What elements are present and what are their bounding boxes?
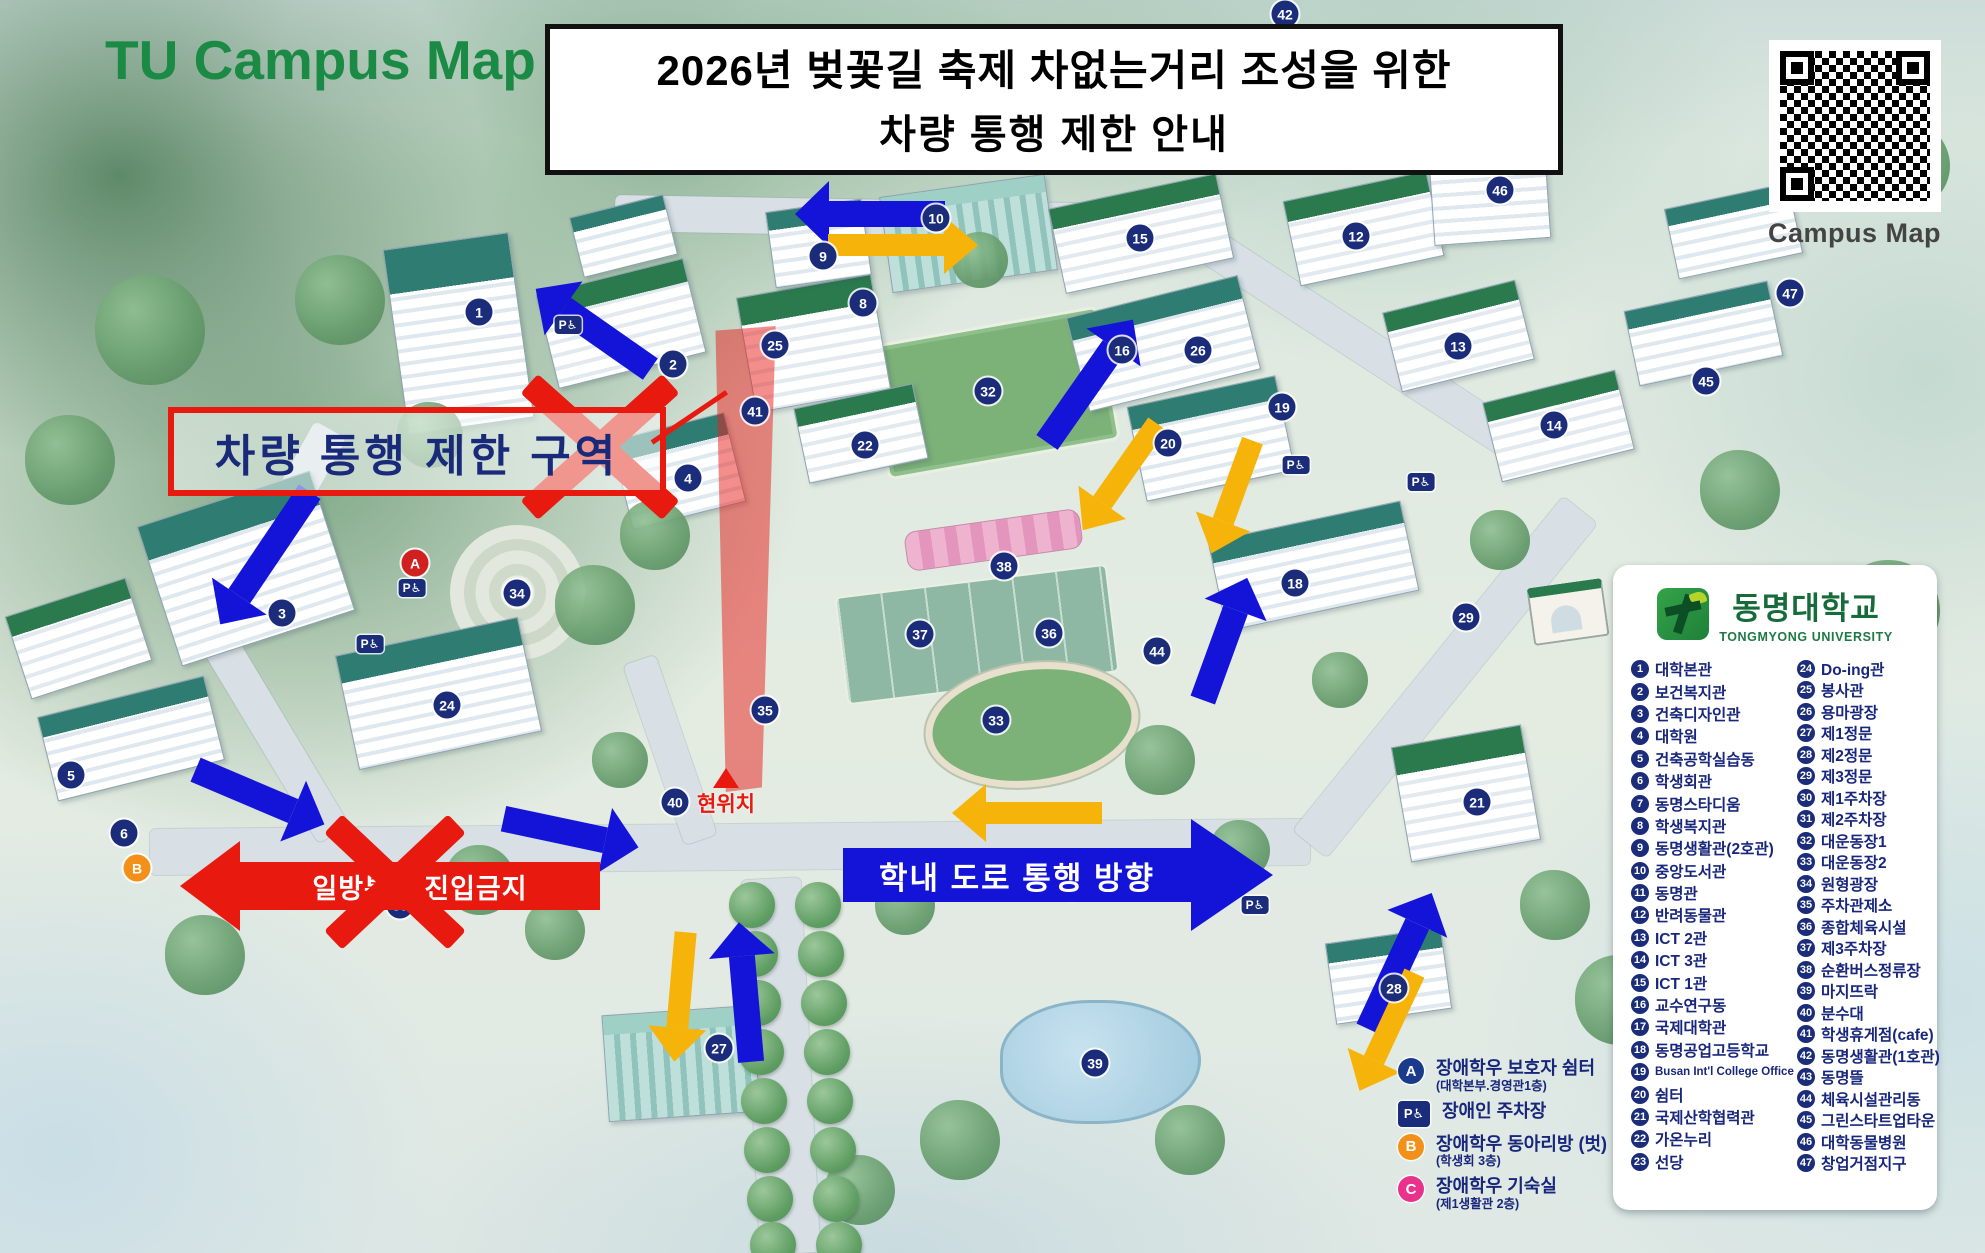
- legend-item-number: 16: [1631, 996, 1649, 1014]
- arrow-head-icon: [1184, 512, 1250, 564]
- legend-item-number: 21: [1631, 1108, 1649, 1126]
- legend-item: 8학생복지관: [1631, 815, 1797, 837]
- legend-item-label: 동명관: [1655, 882, 1698, 904]
- legend-item-number: 36: [1797, 918, 1815, 936]
- arrow-head-icon: [1333, 1048, 1400, 1103]
- legend-item-number: 17: [1631, 1018, 1649, 1036]
- legend-item-number: 6: [1631, 772, 1649, 790]
- legend-item: 47창업거점지구: [1797, 1153, 1925, 1175]
- legend-item: 29제3정문: [1797, 766, 1925, 788]
- map-marker-B: B: [124, 855, 151, 882]
- banner-line1: 2026년 벚꽃길 축제 차없는거리 조성을 위한: [550, 37, 1558, 98]
- legend-item-number: 2: [1631, 683, 1649, 701]
- legend-item-label: 학생복지관: [1655, 815, 1726, 837]
- legend-item-number: 26: [1797, 703, 1815, 721]
- legend-item: 35주차관제소: [1797, 895, 1925, 917]
- legend-item: 32대운동장1: [1797, 830, 1925, 852]
- tree-shape: [920, 1100, 1000, 1180]
- legend-item: 44체육시설관리동: [1797, 1088, 1925, 1110]
- legend-item-label: 주차관제소: [1821, 894, 1892, 916]
- legend-item: 16교수연구동: [1631, 994, 1797, 1016]
- legend-item-label: 가온누리: [1655, 1128, 1712, 1150]
- arch-shape: [1526, 578, 1609, 646]
- legend-item-label: ICT 3관: [1655, 949, 1707, 971]
- legend-item: 40분수대: [1797, 1002, 1925, 1024]
- tree-shape: [295, 255, 385, 345]
- legend-item: 33대운동장2: [1797, 852, 1925, 874]
- legend-item: 43동명뜰: [1797, 1067, 1925, 1089]
- legend-item-label: 제2정문: [1821, 744, 1872, 766]
- tree-shape: [1470, 510, 1530, 570]
- legend-item: 45그린스타트업타운: [1797, 1110, 1925, 1132]
- legend-item-number: 1: [1631, 660, 1649, 678]
- bush-shape: [807, 1078, 853, 1124]
- disabled-parking-icon: P♿: [357, 635, 384, 653]
- arrow-shaft: [1191, 605, 1248, 704]
- legend-item-number: 4: [1631, 727, 1649, 745]
- legend-item-label: Busan Int'l College Office: [1655, 1066, 1794, 1078]
- map-marker-16: 16: [1109, 337, 1136, 364]
- legend-item: 46대학동물병원: [1797, 1131, 1925, 1153]
- legend-item-label: 제2주차장: [1821, 808, 1887, 830]
- legend-item: 31제2주차장: [1797, 809, 1925, 831]
- legend-item: 17국제대학관: [1631, 1016, 1797, 1038]
- map-marker-22: 22: [852, 432, 879, 459]
- legend-item-label: 대운동장2: [1821, 851, 1887, 873]
- legend-item-number: 3: [1631, 705, 1649, 723]
- map-marker-6: 6: [111, 820, 138, 847]
- legend-item-number: 34: [1797, 875, 1815, 893]
- bush-shape: [813, 1176, 859, 1222]
- qr-finder-icon: [1896, 51, 1930, 85]
- map-marker-29: 29: [1453, 604, 1480, 631]
- legend-item-label: 마지뜨락: [1821, 980, 1878, 1002]
- legend-item-number: 35: [1797, 896, 1815, 914]
- legend-column-1: 1대학본관2보건복지관3건축디자인관4대학원5건축공학실습동6학생회관7동명스타…: [1631, 658, 1797, 1174]
- arrow-shaft: [828, 234, 944, 256]
- map-marker-46: 46: [1487, 177, 1514, 204]
- bush-shape: [747, 1176, 793, 1222]
- legend-item-label: 학생회관: [1655, 770, 1712, 792]
- disabled-parking-badge: P♿: [1398, 1101, 1430, 1127]
- legend-item-label: Do-ing관: [1821, 658, 1884, 680]
- legend-item-number: 20: [1631, 1086, 1649, 1104]
- map-marker-28: 28: [1381, 975, 1408, 1002]
- legend-item-label: 대운동장1: [1821, 830, 1887, 852]
- legend-item: 14ICT 3관: [1631, 949, 1797, 971]
- legend-item-label: 대학본관: [1655, 658, 1712, 680]
- legend-item: 5건축공학실습동: [1631, 748, 1797, 770]
- access-label: 장애학우 기숙실: [1436, 1176, 1557, 1197]
- legend-item-label: ICT 1관: [1655, 972, 1707, 994]
- legend-item-number: 47: [1797, 1154, 1815, 1172]
- map-marker-37: 37: [907, 621, 934, 648]
- legend-item: 37제3주차장: [1797, 938, 1925, 960]
- legend-item-label: 순환버스정류장: [1821, 959, 1921, 981]
- map-marker-24: 24: [434, 692, 461, 719]
- bush-shape: [741, 1078, 787, 1124]
- map-marker-19: 19: [1269, 394, 1296, 421]
- legend-item: 39마지뜨락: [1797, 981, 1925, 1003]
- legend-item-label: 분수대: [1821, 1002, 1864, 1024]
- map-marker-26: 26: [1185, 337, 1212, 364]
- legend-item-number: 23: [1631, 1153, 1649, 1171]
- legend-item-number: 11: [1631, 884, 1649, 902]
- map-marker-45: 45: [1693, 368, 1720, 395]
- university-logo: 동명대학교 TONGMYONG UNIVERSITY: [1613, 583, 1937, 644]
- road-direction-arrow: 학내 도로 통행 방향: [843, 818, 1273, 932]
- legend-item-number: 12: [1631, 906, 1649, 924]
- map-marker-34: 34: [504, 580, 531, 607]
- legend-item-number: 39: [1797, 982, 1815, 1000]
- legend-item-number: 10: [1631, 862, 1649, 880]
- qr-finder-icon: [1780, 51, 1814, 85]
- access-item: A장애학우 보호자 쉼터(대학본부.경영관1층): [1398, 1058, 1607, 1094]
- legend-item-number: 33: [1797, 853, 1815, 871]
- arrow-head-icon: [795, 181, 829, 247]
- tree-shape: [1155, 1105, 1225, 1175]
- arrow-head-icon: [706, 919, 775, 959]
- tree-shape: [95, 275, 205, 385]
- bush-shape: [798, 931, 844, 977]
- map-marker-38: 38: [991, 553, 1018, 580]
- legend-item-label: 봉사관: [1821, 679, 1864, 701]
- arrow-head-icon: [944, 216, 978, 274]
- legend-item: 23선당: [1631, 1151, 1797, 1173]
- legend-item-number: 37: [1797, 939, 1815, 957]
- map-marker-5: 5: [58, 762, 85, 789]
- legend-item-number: 31: [1797, 810, 1815, 828]
- legend-item-label: 창업거점지구: [1821, 1152, 1907, 1174]
- arrow-shaft: [666, 931, 696, 1029]
- map-marker-36: 36: [1036, 620, 1063, 647]
- legend-item-label: 대학동물병원: [1821, 1131, 1907, 1153]
- blue-direction-arrow: [1172, 567, 1278, 712]
- legend-item: 18동명공업고등학교: [1631, 1039, 1797, 1061]
- legend-item-label: 선당: [1655, 1151, 1684, 1173]
- legend-item: 25봉사관: [1797, 680, 1925, 702]
- access-item: C장애학우 기숙실(제1생활관 2층): [1398, 1176, 1607, 1212]
- legend-item-number: 8: [1631, 817, 1649, 835]
- legend-item-label: 제1정문: [1821, 722, 1872, 744]
- legend-item-number: 32: [1797, 832, 1815, 850]
- arrow-shaft: [729, 955, 764, 1063]
- disabled-parking-icon: P♿: [399, 579, 426, 597]
- tree-shape: [1700, 450, 1780, 530]
- legend-item: 38순환버스정류장: [1797, 959, 1925, 981]
- legend-item-label: 원형광장: [1821, 873, 1878, 895]
- legend-item: 9동명생활관(2호관): [1631, 837, 1797, 859]
- legend-item-label: 건축공학실습동: [1655, 748, 1755, 770]
- legend-item: 13ICT 2관: [1631, 927, 1797, 949]
- map-marker-20: 20: [1155, 430, 1182, 457]
- legend-item-label: 동명스타디움: [1655, 793, 1741, 815]
- access-label: 장애학우 보호자 쉼터: [1436, 1058, 1595, 1079]
- legend-item-label: 중앙도서관: [1655, 860, 1726, 882]
- location-triangle-icon: [713, 768, 739, 788]
- legend-item-number: 41: [1797, 1025, 1815, 1043]
- qr-code: [1769, 40, 1941, 212]
- access-item: P♿장애인 주차장: [1398, 1101, 1607, 1127]
- legend-item: 1대학본관: [1631, 658, 1797, 680]
- legend-item-label: 국제대학관: [1655, 1016, 1726, 1038]
- tree-shape: [1520, 870, 1590, 940]
- access-label: 장애인 주차장: [1442, 1101, 1546, 1122]
- guardian-shelter-badge: A: [1398, 1058, 1424, 1084]
- legend-item-label: 대학원: [1655, 725, 1698, 747]
- legend-item-label: 동명뜰: [1821, 1066, 1864, 1088]
- building-legend-panel: 동명대학교 TONGMYONG UNIVERSITY 1대학본관2보건복지관3건…: [1613, 565, 1937, 1210]
- legend-item: 6학생회관: [1631, 770, 1797, 792]
- map-marker-35: 35: [752, 697, 779, 724]
- legend-item-label: 반려동물관: [1655, 904, 1726, 926]
- legend-item: 7동명스타디움: [1631, 792, 1797, 814]
- accessibility-legend: A장애학우 보호자 쉼터(대학본부.경영관1층)P♿장애인 주차장B장애학우 동…: [1398, 1058, 1607, 1212]
- map-marker-39: 39: [1082, 1050, 1109, 1077]
- disabled-parking-icon: P♿: [1283, 456, 1310, 474]
- disabled-parking-icon: P♿: [555, 316, 582, 334]
- legend-item: 27제1정문: [1797, 723, 1925, 745]
- legend-item-number: 15: [1631, 974, 1649, 992]
- current-location-label: 현위치: [697, 788, 755, 818]
- legend-item: 41학생휴게점(cafe): [1797, 1024, 1925, 1046]
- legend-item: 3건축디자인관: [1631, 703, 1797, 725]
- legend-item-label: 제3정문: [1821, 765, 1872, 787]
- campus-map-page: 1234568910121314151618192021222425262728…: [0, 0, 1985, 1253]
- map-marker-47: 47: [1777, 280, 1804, 307]
- map-marker-15: 15: [1127, 225, 1154, 252]
- map-marker-21: 21: [1464, 789, 1491, 816]
- bush-shape: [816, 1222, 862, 1253]
- legend-item-label: 종합체육시설: [1821, 916, 1907, 938]
- road-direction-label: 학내 도로 통행 방향: [843, 848, 1191, 902]
- legend-item: 20쉼터: [1631, 1083, 1797, 1105]
- legend-column-2: 24Do-ing관25봉사관26용마광장27제1정문28제2정문29제3정문30…: [1797, 658, 1925, 1174]
- legend-item-number: 42: [1797, 1047, 1815, 1065]
- legend-item-number: 24: [1797, 660, 1815, 678]
- access-text: 장애인 주차장: [1442, 1101, 1546, 1122]
- bush-shape: [795, 882, 841, 928]
- tree-shape: [1312, 652, 1368, 708]
- legend-item-number: 7: [1631, 795, 1649, 813]
- tree-shape: [592, 732, 648, 788]
- legend-item-number: 38: [1797, 961, 1815, 979]
- no-entry-x-icon: [310, 802, 480, 962]
- university-logo-icon: [1657, 588, 1709, 640]
- legend-item-number: 44: [1797, 1090, 1815, 1108]
- access-sub: (대학본부.경영관1층): [1436, 1079, 1595, 1094]
- qr-finder-icon: [1780, 167, 1814, 201]
- access-sub: (학생회 3층): [1436, 1154, 1607, 1169]
- legend-item-label: ICT 2관: [1655, 927, 1707, 949]
- legend-item: 22가온누리: [1631, 1128, 1797, 1150]
- legend-item-number: 30: [1797, 789, 1815, 807]
- legend-item-label: 체육시설관리동: [1821, 1088, 1921, 1110]
- legend-item-label: 학생휴게점(cafe): [1821, 1023, 1934, 1045]
- map-marker-44: 44: [1144, 638, 1171, 665]
- legend-item: 10중앙도서관: [1631, 860, 1797, 882]
- legend-item-number: 27: [1797, 724, 1815, 742]
- dorm-room-badge: C: [1398, 1176, 1424, 1202]
- legend-item: 34원형광장: [1797, 873, 1925, 895]
- legend-item: 36종합체육시설: [1797, 916, 1925, 938]
- legend-item-number: 18: [1631, 1041, 1649, 1059]
- tree-shape: [25, 415, 115, 505]
- university-name-english: TONGMYONG UNIVERSITY: [1719, 630, 1893, 644]
- legend-item-label: 제1주차장: [1821, 787, 1887, 809]
- map-marker-8: 8: [850, 290, 877, 317]
- qr-block: Campus Map: [1768, 40, 1941, 249]
- university-name-korean: 동명대학교: [1732, 583, 1880, 628]
- legend-item-number: 40: [1797, 1004, 1815, 1022]
- legend-item-label: 용마광장: [1821, 701, 1878, 723]
- yellow-direction-arrow: [645, 930, 714, 1065]
- notice-banner: 2026년 벚꽃길 축제 차없는거리 조성을 위한 차량 통행 제한 안내: [545, 24, 1563, 175]
- club-room-badge: B: [1398, 1134, 1424, 1160]
- arrow-shaft: [1213, 437, 1263, 525]
- legend-item: 28제2정문: [1797, 744, 1925, 766]
- legend-item-label: 그린스타트업타운: [1821, 1109, 1935, 1131]
- legend-item: 2보건복지관: [1631, 680, 1797, 702]
- legend-item-number: 45: [1797, 1111, 1815, 1129]
- banner-line2: 차량 통행 제한 안내: [550, 102, 1558, 160]
- disabled-parking-icon: P♿: [1408, 473, 1435, 491]
- map-marker-3: 3: [269, 600, 296, 627]
- legend-item-number: 25: [1797, 681, 1815, 699]
- map-marker-10: 10: [923, 205, 950, 232]
- map-marker-33: 33: [983, 707, 1010, 734]
- legend-item-label: 보건복지관: [1655, 681, 1726, 703]
- map-marker-12: 12: [1343, 223, 1370, 250]
- access-item: B장애학우 동아리방 (벗)(학생회 3층): [1398, 1134, 1607, 1170]
- map-marker-9: 9: [810, 243, 837, 270]
- legend-item: 30제1주차장: [1797, 787, 1925, 809]
- legend-item-number: 14: [1631, 951, 1649, 969]
- legend-item: 11동명관: [1631, 882, 1797, 904]
- access-label: 장애학우 동아리방 (벗): [1436, 1134, 1607, 1155]
- tree-shape: [1125, 725, 1195, 795]
- access-text: 장애학우 보호자 쉼터(대학본부.경영관1층): [1436, 1058, 1595, 1094]
- bush-shape: [744, 1127, 790, 1173]
- legend-item-label: 건축디자인관: [1655, 703, 1741, 725]
- legend-item-number: 22: [1631, 1130, 1649, 1148]
- legend-item-number: 43: [1797, 1068, 1815, 1086]
- legend-item-label: 교수연구동: [1655, 994, 1726, 1016]
- legend-item-label: 동명생활관(1호관): [1821, 1045, 1940, 1067]
- legend-item-number: 19: [1631, 1063, 1649, 1081]
- map-marker-18: 18: [1282, 570, 1309, 597]
- legend-item: 21국제산학협력관: [1631, 1106, 1797, 1128]
- legend-item-number: 5: [1631, 750, 1649, 768]
- bush-shape: [810, 1127, 856, 1173]
- legend-item: 26용마광장: [1797, 701, 1925, 723]
- access-text: 장애학우 동아리방 (벗)(학생회 3층): [1436, 1134, 1607, 1170]
- current-location-marker: 현위치: [697, 768, 755, 818]
- legend-item-label: 국제산학협력관: [1655, 1106, 1755, 1128]
- legend-item: 24Do-ing관: [1797, 658, 1925, 680]
- legend-item: 12반려동물관: [1631, 904, 1797, 926]
- bldg-shape: [5, 578, 153, 700]
- legend-item-label: 동명생활관(2호관): [1655, 837, 1774, 859]
- bush-shape: [804, 1029, 850, 1075]
- tree-shape: [555, 565, 635, 645]
- legend-item: 42동명생활관(1호관): [1797, 1045, 1925, 1067]
- legend-item: 15ICT 1관: [1631, 971, 1797, 993]
- map-marker-1: 1: [466, 299, 493, 326]
- legend-item: 19Busan Int'l College Office: [1631, 1061, 1797, 1083]
- qr-pattern: [1780, 51, 1930, 201]
- map-marker-14: 14: [1541, 412, 1568, 439]
- legend-item-number: 28: [1797, 746, 1815, 764]
- qr-label: Campus Map: [1768, 218, 1941, 249]
- legend-item-number: 46: [1797, 1133, 1815, 1151]
- legend-item-label: 동명공업고등학교: [1655, 1039, 1769, 1061]
- map-marker-40: 40: [662, 789, 689, 816]
- map-marker-32: 32: [975, 378, 1002, 405]
- map-marker-A: A: [402, 550, 429, 577]
- arrow-head-icon: [645, 1025, 706, 1064]
- arrow-head-right-icon: [1191, 819, 1273, 931]
- restricted-zone-label: 차량 통행 제한 구역: [168, 407, 666, 496]
- bush-shape: [801, 980, 847, 1026]
- legend-item-number: 9: [1631, 839, 1649, 857]
- legend-item-number: 13: [1631, 929, 1649, 947]
- arrow-head-left-icon: [180, 841, 240, 931]
- map-marker-41: 41: [742, 398, 769, 425]
- legend-item: 4대학원: [1631, 725, 1797, 747]
- legend-item-label: 쉼터: [1655, 1084, 1684, 1106]
- yellow-direction-arrow: [828, 216, 978, 274]
- legend-item-label: 제3주차장: [1821, 937, 1887, 959]
- map-marker-27: 27: [706, 1035, 733, 1062]
- map-marker-25: 25: [762, 332, 789, 359]
- map-marker-13: 13: [1445, 333, 1472, 360]
- legend-item-number: 29: [1797, 767, 1815, 785]
- page-title: TU Campus Map: [105, 28, 536, 92]
- access-text: 장애학우 기숙실(제1생활관 2층): [1436, 1176, 1557, 1212]
- access-sub: (제1생활관 2층): [1436, 1197, 1557, 1212]
